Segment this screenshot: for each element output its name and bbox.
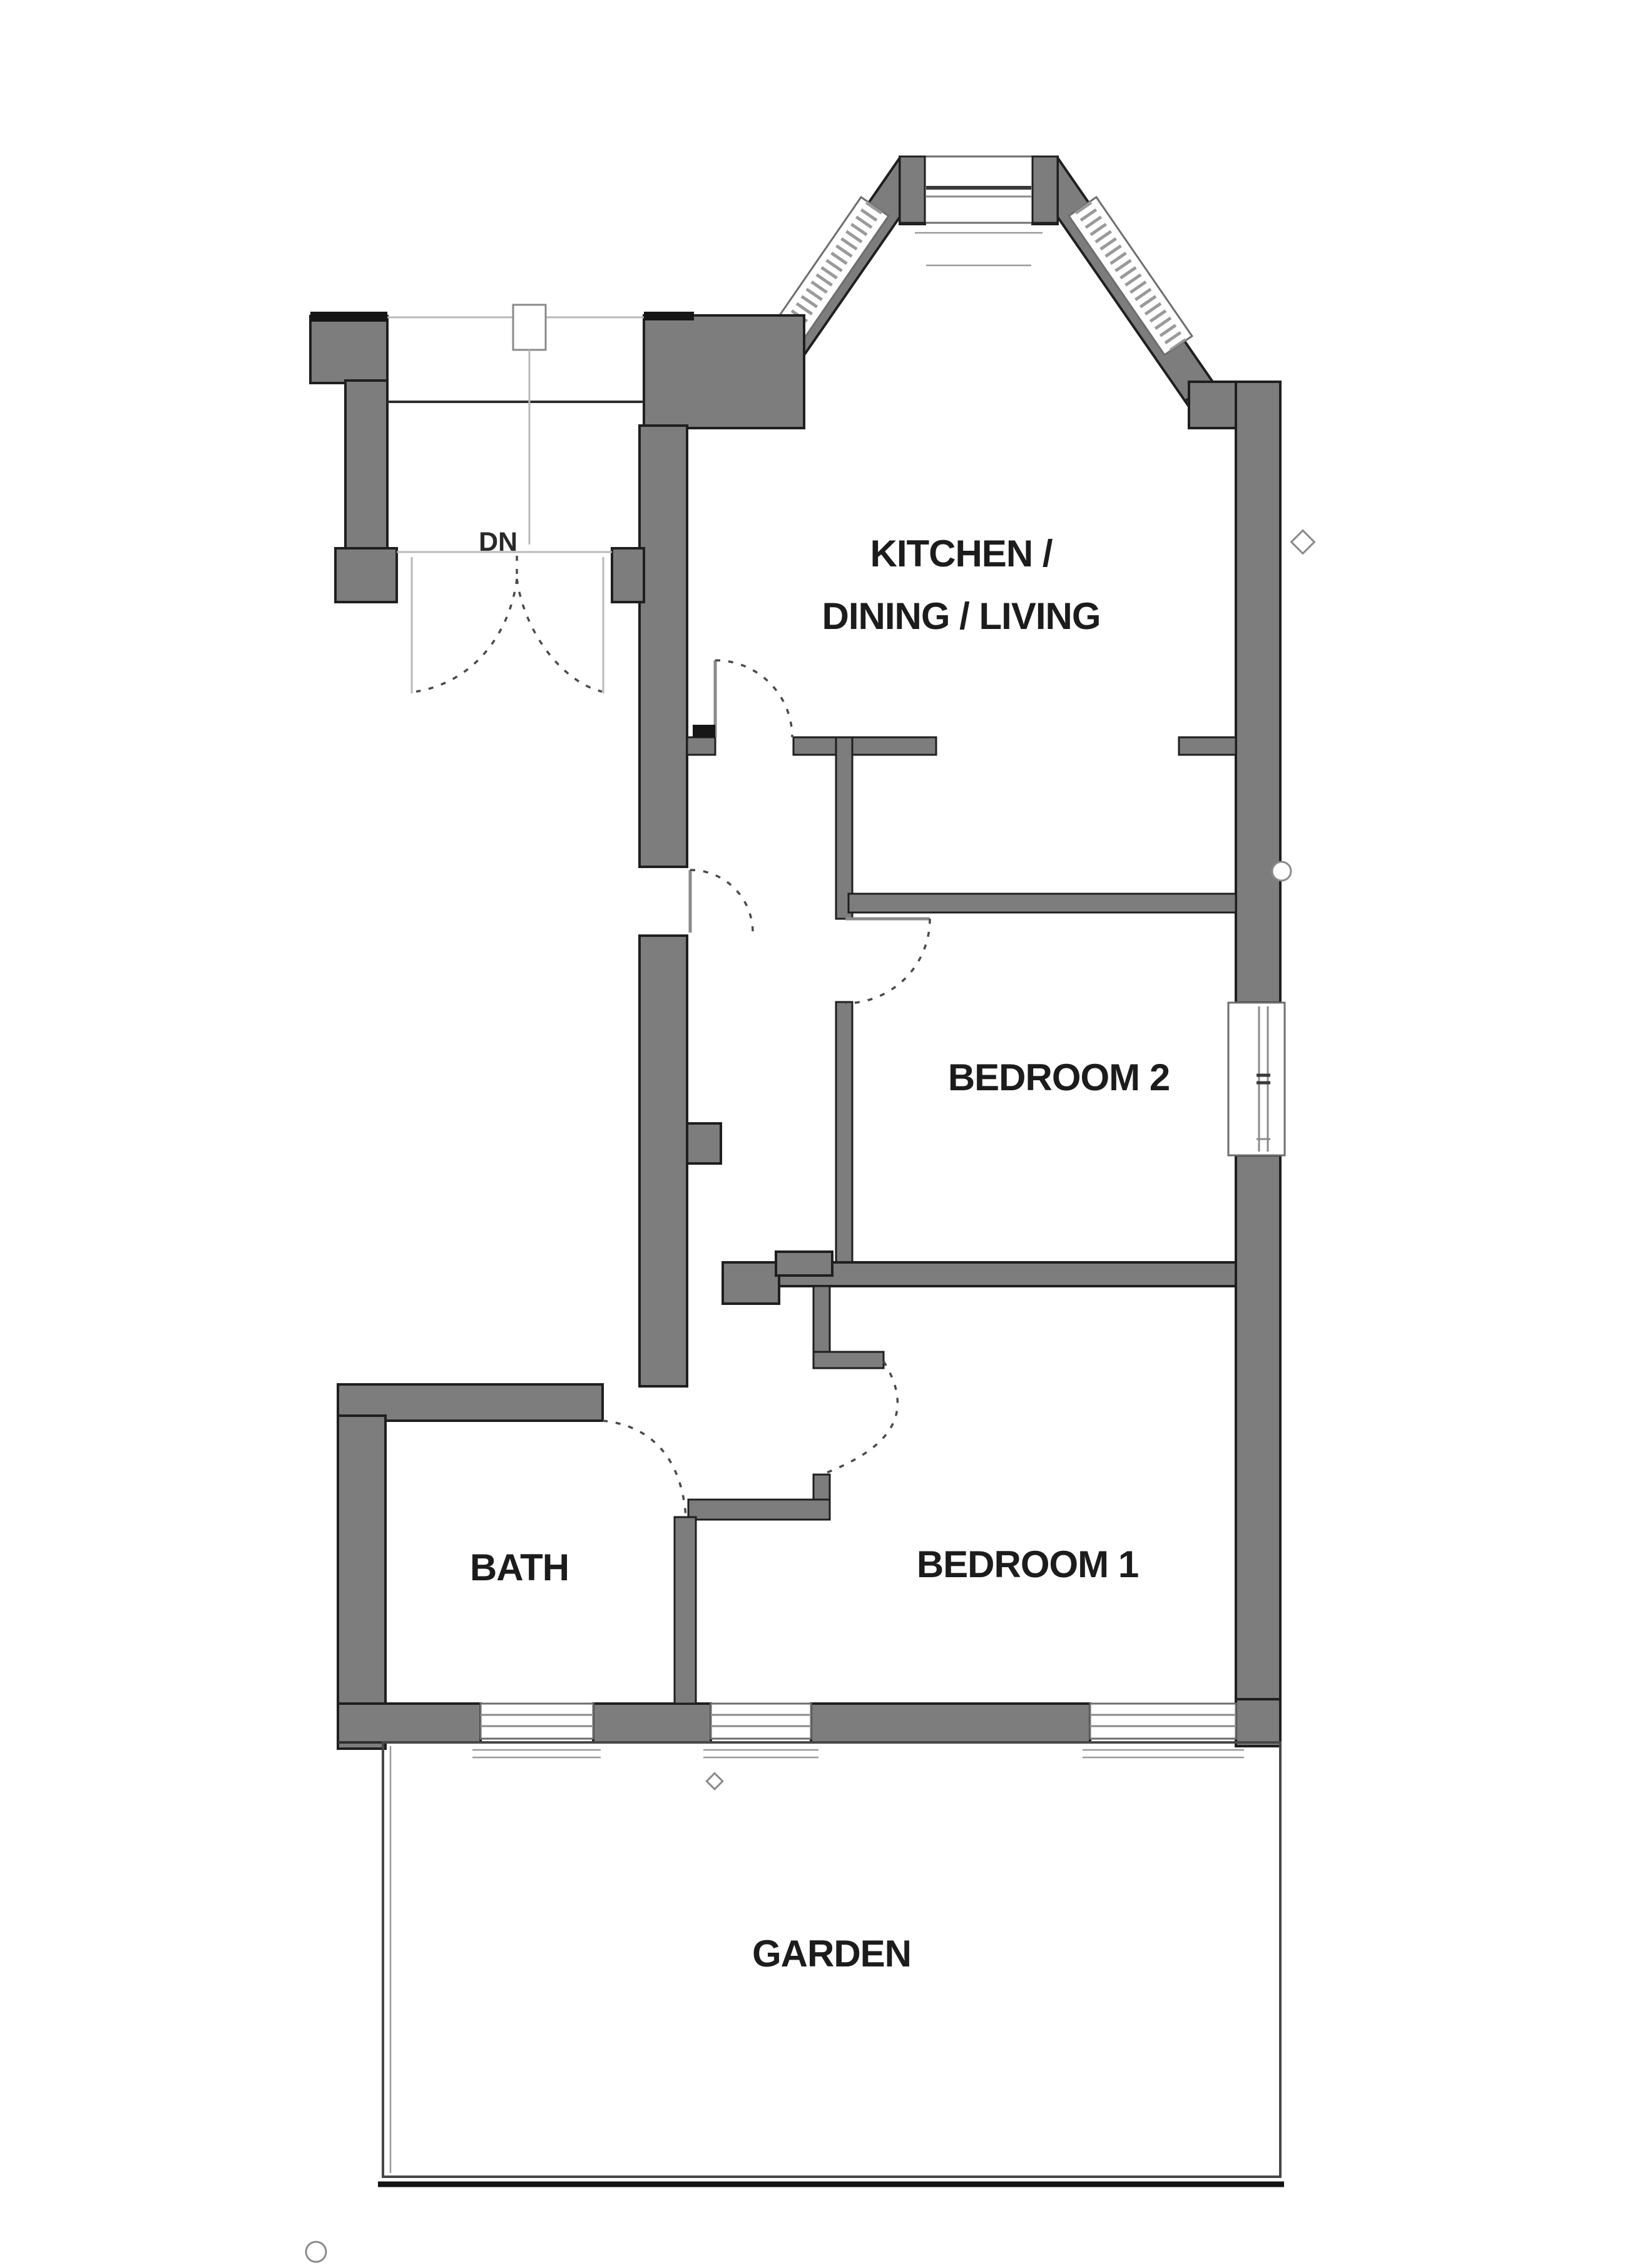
wall-rear-seg3 <box>811 1704 1090 1742</box>
wall-cap <box>310 312 387 322</box>
bay-glass-right <box>1069 197 1192 355</box>
bedroom2-door <box>845 919 930 1003</box>
wall-cap <box>644 312 694 320</box>
bath-window <box>481 1704 593 1739</box>
wall-rear-seg2 <box>593 1704 711 1742</box>
bedroom1-door <box>813 1286 897 1520</box>
circle-mark-right-wall <box>1272 862 1291 881</box>
wall-entry-left-top <box>310 316 387 383</box>
bay-front-window <box>900 156 1058 265</box>
wall-bed2-west-upper <box>836 737 852 919</box>
bath-door-arc <box>603 1421 686 1517</box>
wall-bath-right <box>675 1517 696 1704</box>
door-arc-right <box>517 579 602 692</box>
wall-kitchen-corner-tl <box>644 315 804 428</box>
wall-hall-south <box>688 1500 830 1520</box>
wall-hall-left <box>640 936 687 1386</box>
wall-bed2-west-lower <box>836 1002 852 1262</box>
wall-entry-left-column <box>345 381 387 552</box>
wall-entry-jamb-right <box>612 548 644 602</box>
stairs-down-label: DN <box>479 527 518 557</box>
bedroom1-window-left <box>711 1704 811 1739</box>
door-arc-left <box>416 579 517 692</box>
wall-kitchen-south-a <box>687 737 715 755</box>
wall-right-upper <box>1236 382 1280 1003</box>
room-label-kitchen-line1: KITCHEN / <box>870 533 1053 575</box>
floorplan-sheet: KITCHEN / DINING / LIVING BEDROOM 2 BEDR… <box>0 0 1652 2265</box>
wall-bed2-north <box>849 894 1236 913</box>
windows <box>472 1003 1285 1757</box>
wall-kitchen-south-c <box>1179 737 1236 755</box>
room-label-bedroom1: BEDROOM 1 <box>917 1543 1138 1585</box>
diamond-mark-garden <box>706 1773 722 1789</box>
diamond-mark-right <box>1292 531 1315 554</box>
room-label-bedroom2: BEDROOM 2 <box>948 1056 1170 1098</box>
wall-right-lower <box>1236 1155 1280 1746</box>
outer-walls <box>310 312 1280 1749</box>
entry-double-door <box>412 556 603 693</box>
wall-hall-left-step <box>687 1123 721 1163</box>
wall-bed-divider <box>776 1262 1236 1286</box>
wall-kitchen-south-b <box>793 737 936 755</box>
bedroom2-window <box>1228 1003 1285 1155</box>
floorplan-drawing: KITCHEN / DINING / LIVING BEDROOM 2 BEDR… <box>0 0 1652 2265</box>
wall-rear-corner-right <box>1236 1699 1280 1746</box>
wall-bed-divider-notch2 <box>776 1252 832 1276</box>
wall-entry-left-foot <box>335 548 397 602</box>
wall-bath-left <box>338 1416 385 1749</box>
circle-mark-bottom-left <box>306 2242 326 2262</box>
wall-bed-divider-notch1 <box>723 1262 779 1304</box>
room-label-garden: GARDEN <box>752 1933 911 1975</box>
wall-rear-seg1 <box>338 1704 481 1742</box>
room-label-kitchen-line2: DINING / LIVING <box>822 595 1100 637</box>
hall-door <box>690 870 753 933</box>
newel-post <box>513 305 546 350</box>
entry-stairs <box>387 305 644 693</box>
wall-kitchen-left <box>640 426 687 867</box>
bedroom1-window-right <box>1090 1704 1236 1739</box>
room-label-bath: BATH <box>470 1547 569 1588</box>
kitchen-door <box>693 660 792 737</box>
